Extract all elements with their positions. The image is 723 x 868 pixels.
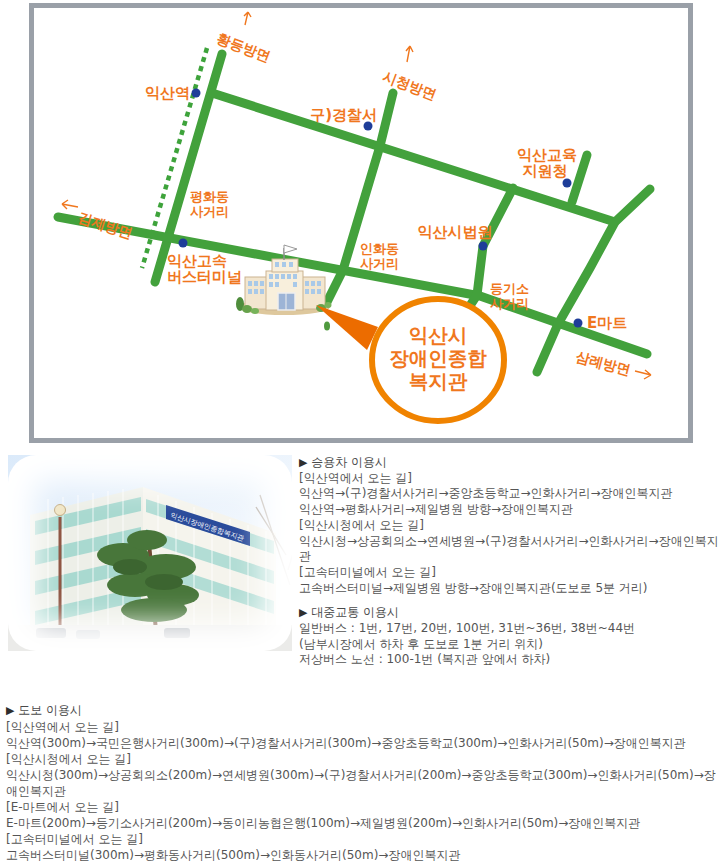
poi-dot-iksan-station <box>192 89 201 98</box>
direction-line: 익산역(300m)→국민은행사거리(300m)→(구)경찰서사거리(300m)→… <box>6 735 720 751</box>
direction-label-samrye: 삼례방면 <box>574 348 632 378</box>
poi-label-terminal-line2: 버스터미널 <box>167 268 242 286</box>
section-car-title: ▶ 승용차 이용시 <box>299 455 723 471</box>
label-pyeonghwa-line2: 사거리 <box>190 204 229 219</box>
samrye-arrow-icon <box>635 370 651 379</box>
direction-line: [고속터미널에서 오는 길] <box>299 565 723 581</box>
poi-label-iksan-station: 익산역 <box>145 84 190 102</box>
poi-label-court: 익산시법원 <box>418 223 493 241</box>
triangle-bullet-icon: ▶ <box>299 606 307 619</box>
direction-label-gimje: 김제방면 <box>76 209 134 242</box>
direction-line: E-마트(200m)→등기소사거리(200m)→동이리농협은행(100m)→제일… <box>6 815 720 831</box>
poi-label-emart: E마트 <box>587 314 627 332</box>
destination-line1: 익산시 <box>409 324 468 347</box>
sicheong-arrow-icon <box>406 46 413 62</box>
direction-line: 고속버스터미널(300m)→평화동사거리(500m)→인화동사거리(50m)→장… <box>6 847 720 863</box>
direction-line: [익산시청에서 오는 길] <box>6 751 720 767</box>
poi-dot-bus-terminal <box>179 239 188 248</box>
section-walk-title: ▶ 도보 이용시 <box>6 702 720 719</box>
poi-dot-court <box>479 242 488 251</box>
direction-line: [고속터미널에서 오는 길] <box>6 831 720 847</box>
poi-label-old-police: 구)경찰서 <box>310 106 377 124</box>
directions-panel: ▶ 승용차 이용시 [익산역에서 오는 길] 익산역→(구)경찰서사거리→중앙초… <box>299 455 723 668</box>
direction-line: [E-마트에서 오는 길] <box>6 799 720 815</box>
direction-line: (남부시장에서 하차 후 도보로 1분 거리 위치) <box>299 637 723 653</box>
label-inhwa-line2: 사거리 <box>360 256 399 271</box>
direction-line: [익산역에서 오는 길] <box>299 471 723 487</box>
destination-line3: 복지관 <box>409 370 468 393</box>
triangle-bullet-icon: ▶ <box>6 704 14 717</box>
destination-callout: 익산시 장애인종합 복지관 <box>372 299 504 421</box>
section-transit-title: ▶ 대중교통 이용시 <box>299 605 723 621</box>
label-pyeonghwa-line1: 평화동 <box>190 189 229 204</box>
direction-line: 익산역→(구)경찰서사거리→중앙초등학교→인화사거리→장애인복지관 <box>299 486 723 502</box>
building-photo-art: 익산시장애인종합복지관 <box>8 455 292 651</box>
section-transit-title-text: 대중교통 이용시 <box>311 605 399 619</box>
direction-line: 익산시청(300m)→상공회의소(200m)→연세병원(300m)→(구)경찰서… <box>6 767 720 799</box>
direction-line: [익산시청에서 오는 길] <box>299 518 723 534</box>
section-walk: ▶ 도보 이용시 [익산역에서 오는 길] 익산역(300m)→국민은행사거리(… <box>6 702 720 863</box>
map-canvas: 황등방면 시청방면 김제방면 삼례방면 익산역 구)경찰서 익산교육 지원청 익… <box>34 8 688 438</box>
poi-label-edu-office-line2: 지원청 <box>523 162 568 180</box>
section-transit: ▶ 대중교통 이용시 일반버스 : 1번, 17번, 20번, 100번, 31… <box>299 605 723 668</box>
direction-line: 익산시청→상공회의소→연세병원→(구)경찰서사거리→인화사거리→장애인복지관 <box>299 534 723 565</box>
destination-line2: 장애인종합 <box>389 347 487 370</box>
label-deunggiso-line1: 등기소 <box>490 281 529 296</box>
triangle-bullet-icon: ▶ <box>299 456 307 469</box>
label-deunggiso-line2: 사거리 <box>490 296 529 311</box>
hwangdeung-arrow-icon <box>244 12 251 25</box>
direction-line: 일반버스 : 1번, 17번, 20번, 100번, 31번~36번, 38번~… <box>299 621 723 637</box>
leaf-dot <box>324 322 330 331</box>
building-photo: 익산시장애인종합복지관 <box>8 455 292 651</box>
label-inhwa-line1: 인화동 <box>360 241 399 256</box>
direction-line: 고속버스터미널→제일병원 방향→장애인복지관(도보로 5분 거리) <box>299 581 723 597</box>
section-car-title-text: 승용차 이용시 <box>311 455 387 469</box>
location-map: 황등방면 시청방면 김제방면 삼례방면 익산역 구)경찰서 익산교육 지원청 익… <box>29 3 693 443</box>
page: 황등방면 시청방면 김제방면 삼례방면 익산역 구)경찰서 익산교육 지원청 익… <box>0 0 723 868</box>
gimje-arrow-icon <box>62 200 78 209</box>
poi-dot-emart <box>574 319 583 328</box>
section-walk-title-text: 도보 이용시 <box>18 703 82 717</box>
direction-line: 저상버스 노선 : 100-1번 (복지관 앞에서 하차) <box>299 652 723 668</box>
direction-line: 익산역→평화사거리→제일병원 방향→장애인복지관 <box>299 502 723 518</box>
section-car: ▶ 승용차 이용시 [익산역에서 오는 길] 익산역→(구)경찰서사거리→중앙초… <box>299 455 723 596</box>
direction-line: [익산역에서 오는 길] <box>6 719 720 735</box>
